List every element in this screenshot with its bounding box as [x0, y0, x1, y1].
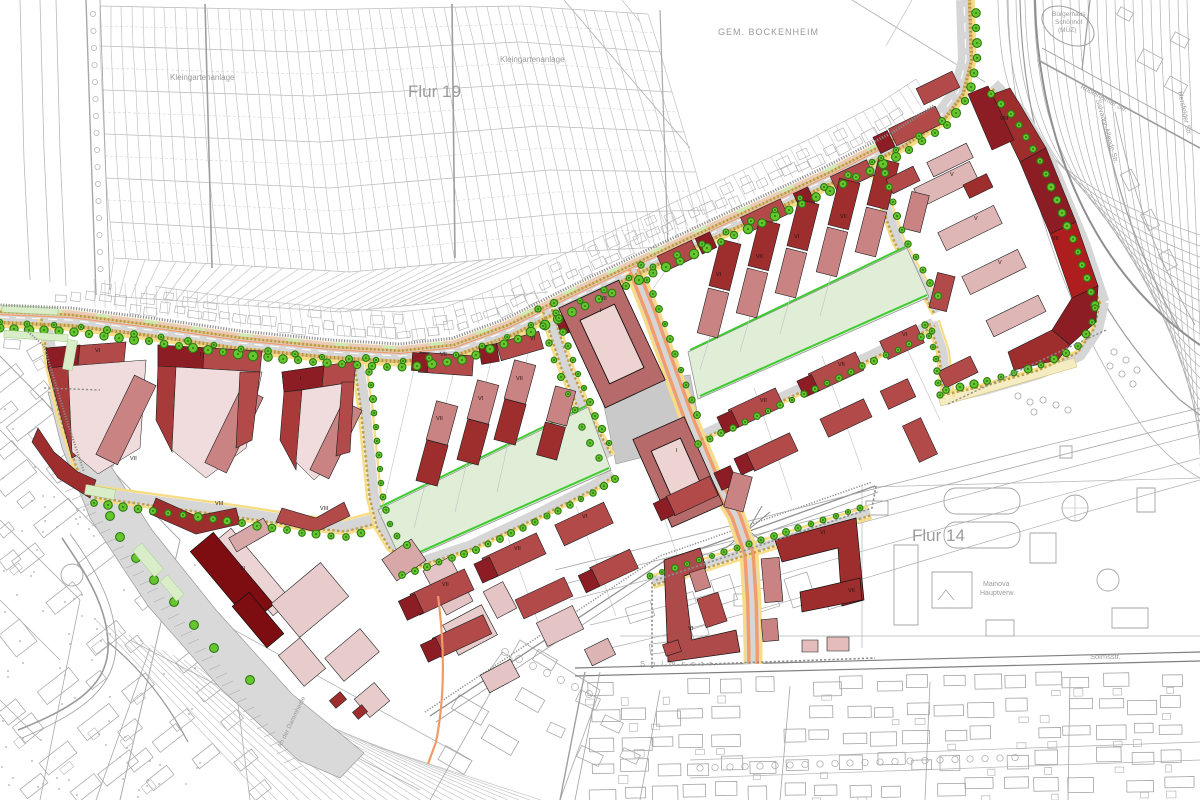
svg-text:Schönhof: Schönhof — [1055, 19, 1083, 26]
svg-text:VI: VI — [530, 336, 536, 342]
svg-text:VIII: VIII — [215, 501, 224, 507]
svg-text:VII: VII — [760, 398, 767, 404]
svg-text:VII: VII — [516, 376, 523, 382]
svg-text:VII: VII — [600, 296, 607, 302]
svg-text:XI: XI — [240, 566, 246, 572]
svg-text:Kleingartenanlage: Kleingartenanlage — [170, 73, 235, 82]
svg-text:V: V — [974, 216, 978, 222]
svg-text:VII: VII — [440, 352, 447, 358]
svg-text:VI: VI — [95, 348, 101, 354]
svg-text:VI: VI — [688, 626, 694, 632]
svg-text:VII: VII — [436, 416, 443, 422]
svg-text:VI: VI — [902, 332, 908, 338]
svg-text:VII: VII — [848, 588, 855, 594]
svg-text:Mainova: Mainova — [983, 581, 1010, 588]
svg-text:S o l m s s t r.: S o l m s s t r. — [640, 659, 717, 668]
svg-text:VII: VII — [130, 456, 137, 462]
svg-text:V: V — [950, 172, 954, 178]
svg-text:VII: VII — [838, 362, 845, 368]
svg-text:Flur 14: Flur 14 — [912, 526, 965, 545]
svg-text:VIII: VIII — [320, 506, 329, 512]
svg-text:VIII: VIII — [1000, 116, 1009, 122]
svg-text:VII: VII — [442, 582, 449, 588]
svg-text:VI: VI — [582, 514, 588, 520]
svg-text:VI: VI — [820, 530, 826, 536]
svg-text:V: V — [998, 260, 1002, 266]
svg-text:VII: VII — [840, 214, 847, 220]
svg-text:VII: VII — [756, 254, 763, 260]
svg-text:Hauptverw.: Hauptverw. — [980, 590, 1015, 597]
svg-text:VI: VI — [478, 396, 484, 402]
svg-text:VII: VII — [1052, 236, 1059, 242]
svg-text:VI: VI — [794, 234, 800, 240]
svg-text:Bürgerhaus: Bürgerhaus — [1052, 11, 1086, 18]
svg-text:GEM. BOCKENHEIM: GEM. BOCKENHEIM — [718, 27, 819, 37]
svg-text:Kleingartenanlage: Kleingartenanlage — [500, 55, 565, 64]
svg-text:(MÜZ): (MÜZ) — [1058, 26, 1076, 34]
svg-text:VI: VI — [716, 272, 722, 278]
svg-text:Flur 19: Flur 19 — [408, 82, 461, 101]
svg-text:Solmsstr.: Solmsstr. — [1090, 652, 1121, 661]
svg-text:VII: VII — [514, 546, 521, 552]
